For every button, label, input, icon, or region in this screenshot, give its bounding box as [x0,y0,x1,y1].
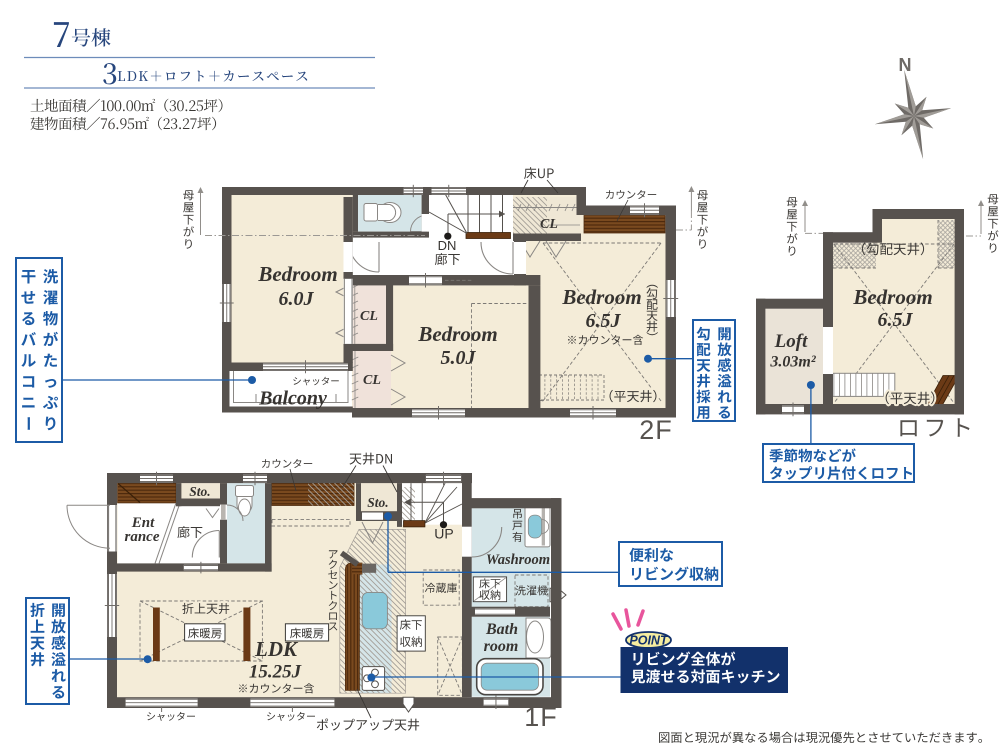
svg-text:Sto.: Sto. [367,495,388,510]
svg-text:15.25J: 15.25J [249,662,302,683]
svg-text:6.0J: 6.0J [279,288,315,310]
svg-text:LDK: LDK [254,637,299,661]
svg-text:Loft: Loft [774,331,808,352]
svg-text:room: room [484,638,519,655]
svg-text:Bedroom: Bedroom [561,285,641,309]
svg-text:UP: UP [434,526,453,542]
svg-text:6.5J: 6.5J [586,310,622,332]
svg-text:rance: rance [125,529,160,545]
svg-text:Bath: Bath [485,621,518,638]
svg-text:2F: 2F [639,415,673,445]
svg-text:Washroom: Washroom [486,552,550,568]
svg-text:Bedroom: Bedroom [852,285,932,309]
svg-text:CL: CL [540,217,558,232]
svg-text:Bedroom: Bedroom [417,322,497,346]
svg-text:6.5J: 6.5J [878,309,914,331]
svg-text:POINT: POINT [629,634,669,648]
svg-text:Balcony: Balcony [258,388,327,410]
svg-text:Sto.: Sto. [189,484,210,499]
svg-text:Bedroom: Bedroom [257,262,337,286]
svg-text:DN: DN [438,238,457,253]
svg-text:3.03m²: 3.03m² [769,354,816,371]
svg-text:1F: 1F [524,702,558,732]
svg-text:CL: CL [363,373,381,388]
svg-text:N: N [899,55,912,75]
svg-text:5.0J: 5.0J [441,347,477,369]
svg-text:CL: CL [360,309,378,324]
